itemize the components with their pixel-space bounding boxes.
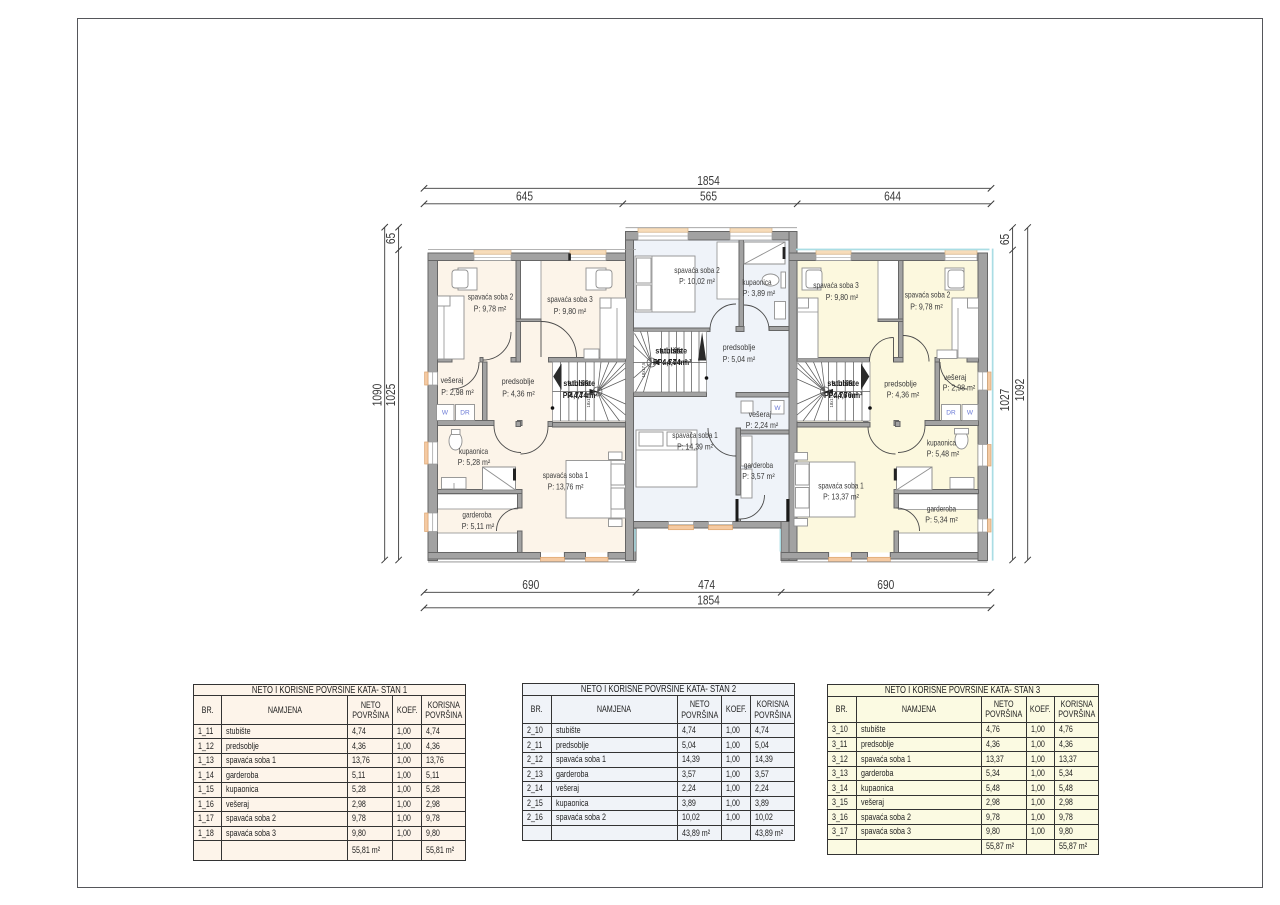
svg-text:645: 645 bbox=[516, 189, 533, 204]
svg-text:garderoba: garderoba bbox=[744, 461, 774, 470]
svg-text:kupaonica: kupaonica bbox=[459, 447, 489, 456]
svg-text:P: 9,78 m²: P: 9,78 m² bbox=[910, 303, 943, 312]
svg-text:P: 9,80 m²: P: 9,80 m² bbox=[826, 293, 859, 302]
svg-text:stubište: stubište bbox=[568, 379, 596, 388]
svg-text:P: 9,80 m²: P: 9,80 m² bbox=[554, 307, 587, 316]
svg-text:spavaća soba 3: spavaća soba 3 bbox=[813, 281, 859, 290]
svg-text:spavaća soba 1: spavaća soba 1 bbox=[543, 471, 589, 480]
svg-text:spavaća soba 2: spavaća soba 2 bbox=[905, 291, 951, 300]
svg-text:spavaća soba 2: spavaća soba 2 bbox=[674, 266, 720, 275]
svg-text:18x17,5: 18x17,5 bbox=[829, 392, 834, 408]
svg-text:1854: 1854 bbox=[697, 593, 720, 608]
svg-text:P: 5,04 m²: P: 5,04 m² bbox=[723, 355, 756, 364]
svg-text:P 4,74 m²: P 4,74 m² bbox=[567, 391, 598, 400]
svg-text:stubište: stubište bbox=[660, 347, 688, 356]
svg-text:P: 5,11 m²: P: 5,11 m² bbox=[462, 522, 495, 531]
svg-text:18x17,5: 18x17,5 bbox=[641, 362, 646, 378]
svg-text:P: 13,37 m²: P: 13,37 m² bbox=[823, 493, 859, 502]
svg-text:vešeraj: vešeraj bbox=[944, 373, 967, 382]
svg-text:kupaonica: kupaonica bbox=[927, 439, 957, 448]
svg-text:690: 690 bbox=[877, 577, 894, 592]
svg-text:P: 2,98 m²: P: 2,98 m² bbox=[943, 384, 976, 393]
svg-text:P: 5,28 m²: P: 5,28 m² bbox=[458, 458, 491, 467]
svg-text:vešeraj: vešeraj bbox=[749, 410, 772, 419]
svg-text:P: 2,98 m²: P: 2,98 m² bbox=[441, 388, 474, 397]
svg-text:DR: DR bbox=[460, 410, 470, 417]
svg-text:DR: DR bbox=[946, 410, 956, 417]
svg-text:P: 4,36 m²: P: 4,36 m² bbox=[502, 390, 535, 399]
svg-text:P: 10,02 m²: P: 10,02 m² bbox=[679, 277, 715, 286]
svg-text:spavaća soba 3: spavaća soba 3 bbox=[547, 295, 593, 304]
svg-text:stubište: stubište bbox=[832, 379, 860, 388]
svg-text:spavaća soba 1: spavaća soba 1 bbox=[818, 482, 864, 491]
svg-text:kupaonica: kupaonica bbox=[742, 278, 772, 287]
svg-text:W: W bbox=[774, 405, 781, 412]
svg-text:65: 65 bbox=[997, 234, 1012, 245]
svg-text:P: 3,57 m²: P: 3,57 m² bbox=[742, 472, 775, 481]
svg-text:vešeraj: vešeraj bbox=[441, 376, 464, 385]
svg-text:spavaća soba 2: spavaća soba 2 bbox=[468, 293, 514, 302]
svg-text:P: 5,48 m²: P: 5,48 m² bbox=[927, 450, 960, 459]
svg-text:predsoblje: predsoblje bbox=[884, 380, 917, 389]
svg-text:P: 5,34 m²: P: 5,34 m² bbox=[925, 516, 958, 525]
svg-text:65: 65 bbox=[383, 233, 398, 244]
svg-text:P: 13,76 m²: P: 13,76 m² bbox=[548, 483, 584, 492]
svg-text:spavaća soba 1: spavaća soba 1 bbox=[672, 431, 718, 440]
svg-text:1027: 1027 bbox=[997, 389, 1012, 412]
svg-text:garderoba: garderoba bbox=[927, 505, 957, 514]
svg-text:P: 4,74 m²: P: 4,74 m² bbox=[658, 358, 692, 367]
svg-text:P: 3,89 m²: P: 3,89 m² bbox=[743, 289, 776, 298]
svg-text:1092: 1092 bbox=[1012, 379, 1027, 402]
svg-text:1025: 1025 bbox=[383, 384, 398, 407]
svg-text:18x17,5: 18x17,5 bbox=[586, 392, 591, 408]
svg-text:644: 644 bbox=[884, 189, 901, 204]
svg-text:565: 565 bbox=[700, 189, 717, 204]
svg-text:1854: 1854 bbox=[697, 173, 720, 188]
svg-text:P: 4,36 m²: P: 4,36 m² bbox=[887, 391, 920, 400]
svg-text:garderoba: garderoba bbox=[462, 511, 492, 520]
svg-text:W: W bbox=[442, 410, 449, 417]
svg-text:W: W bbox=[967, 410, 974, 417]
svg-text:predsoblje: predsoblje bbox=[502, 377, 535, 386]
svg-text:P: 14,39 m²: P: 14,39 m² bbox=[677, 443, 713, 452]
svg-text:690: 690 bbox=[522, 577, 539, 592]
svg-text:P: 2,24 m²: P: 2,24 m² bbox=[746, 421, 779, 430]
svg-text:predsoblje: predsoblje bbox=[723, 343, 756, 352]
svg-text:474: 474 bbox=[698, 577, 715, 592]
svg-text:P: 9,78 m²: P: 9,78 m² bbox=[474, 305, 507, 314]
